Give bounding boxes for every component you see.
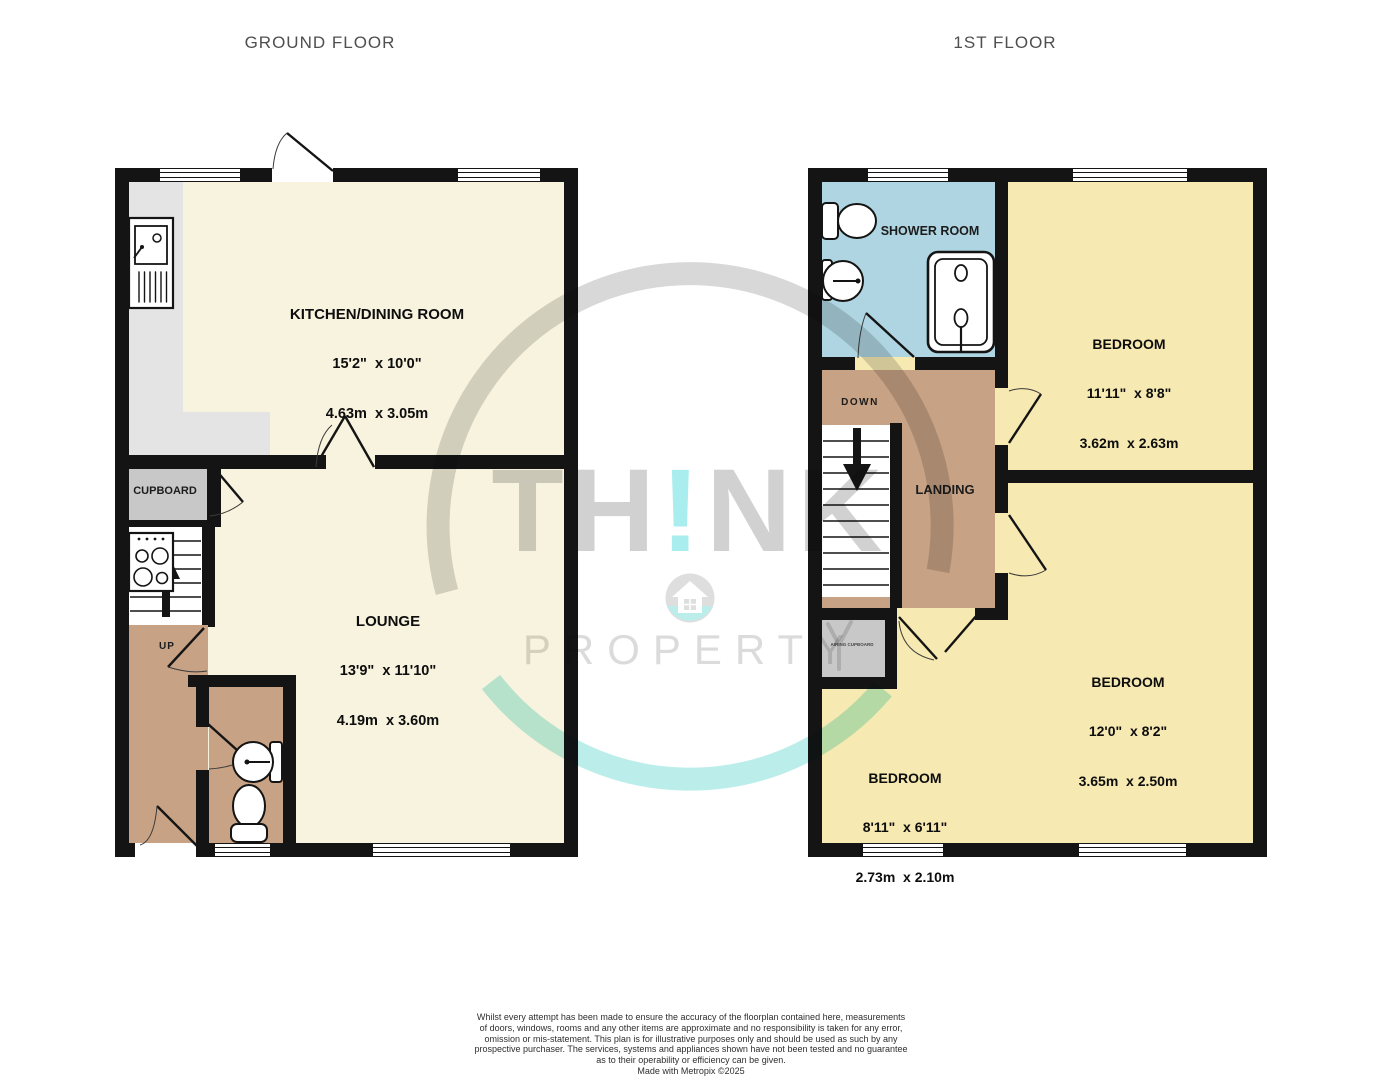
window: [1073, 168, 1187, 182]
disclaimer-line: Whilst every attempt has been made to en…: [0, 1012, 1382, 1023]
window: [215, 843, 270, 857]
room-size-imperial: 12'0" x 8'2": [1079, 724, 1178, 739]
bedroom1-label: BEDROOM 11'11" x 8'8" 3.62m x 2.63m: [1080, 302, 1179, 485]
room-name: BEDROOM: [856, 771, 955, 786]
interior-wall: [202, 527, 215, 627]
window: [160, 168, 240, 182]
interior-wall: [129, 520, 221, 527]
bedroom3-label: BEDROOM 8'11" x 6'11" 2.73m x 2.10m: [856, 736, 955, 919]
cupboard-label: CUPBOARD: [133, 485, 197, 497]
interior-wall: [885, 620, 897, 677]
disclaimer-line: omission or mis-statement. This plan is …: [0, 1034, 1382, 1045]
made-with-metropix: Made with Metropix ©2025: [0, 1066, 1382, 1077]
room-name: BEDROOM: [1079, 675, 1178, 690]
disclaimer-line: prospective purchaser. The services, sys…: [0, 1044, 1382, 1055]
floorplan-image: GROUND FLOOR 1ST FLOOR KITCHEN/DINING RO…: [0, 0, 1382, 1080]
window: [1079, 843, 1186, 857]
disclaimer: Whilst every attempt has been made to en…: [0, 1012, 1382, 1077]
staircase: [129, 527, 202, 625]
interior-wall: [196, 687, 209, 727]
interior-wall: [975, 608, 1008, 620]
window: [458, 168, 540, 182]
disclaimer-line: as to their operability or efficiency ca…: [0, 1055, 1382, 1066]
stairs-down-label: DOWN: [841, 397, 879, 408]
room-size-metric: 4.63m x 3.05m: [290, 407, 464, 423]
landing-label: LANDING: [915, 482, 974, 497]
interior-wall: [808, 357, 855, 370]
staircase: [822, 425, 890, 597]
stairs-up-label: UP: [159, 641, 175, 652]
door-opening: [135, 843, 196, 857]
kitchen-counter: [129, 412, 270, 455]
room-size-imperial: 13'9" x 11'10": [337, 664, 439, 680]
room-size-metric: 3.65m x 2.50m: [1079, 774, 1178, 789]
room-name: KITCHEN/DINING ROOM: [290, 307, 464, 323]
room-size-metric: 3.62m x 2.63m: [1080, 436, 1179, 451]
interior-wall: [890, 423, 902, 608]
wc-room: [209, 687, 283, 843]
window: [373, 843, 510, 857]
door-leaf: [287, 133, 333, 171]
airing-cupboard: [822, 620, 885, 677]
room-size-metric: 4.19m x 3.60m: [337, 714, 439, 730]
interior-wall: [196, 770, 209, 843]
interior-wall: [283, 675, 296, 843]
room-size-imperial: 8'11" x 6'11": [856, 820, 955, 835]
interior-wall: [207, 455, 221, 520]
room-size-imperial: 15'2" x 10'0": [290, 357, 464, 373]
kitchen-label: KITCHEN/DINING ROOM 15'2" x 10'0" 4.63m …: [290, 272, 464, 458]
interior-wall: [808, 677, 897, 689]
room-name: BEDROOM: [1080, 337, 1179, 352]
first-floor-title: 1ST FLOOR: [953, 33, 1056, 53]
airing-cupboard-label: AIRING CUPBOARD: [830, 642, 873, 647]
ground-floor-title: GROUND FLOOR: [245, 33, 396, 53]
lounge-label: LOUNGE 13'9" x 11'10" 4.19m x 3.60m: [337, 579, 439, 765]
kitchen-counter: [129, 182, 183, 412]
bedroom2-label: BEDROOM 12'0" x 8'2" 3.65m x 2.50m: [1079, 640, 1178, 823]
house-icon: [666, 574, 715, 623]
room-size-metric: 2.73m x 2.10m: [856, 870, 955, 885]
shower-room: [822, 182, 995, 357]
shower-room-label: SHOWER ROOM: [881, 224, 980, 238]
disclaimer-line: of doors, windows, rooms and any other i…: [0, 1023, 1382, 1034]
interior-wall: [995, 168, 1008, 388]
door-opening: [272, 168, 333, 182]
window: [868, 168, 948, 182]
room-name: LOUNGE: [337, 614, 439, 630]
room-size-imperial: 11'11" x 8'8": [1080, 386, 1179, 401]
interior-wall: [188, 675, 296, 687]
interior-wall: [808, 608, 897, 620]
